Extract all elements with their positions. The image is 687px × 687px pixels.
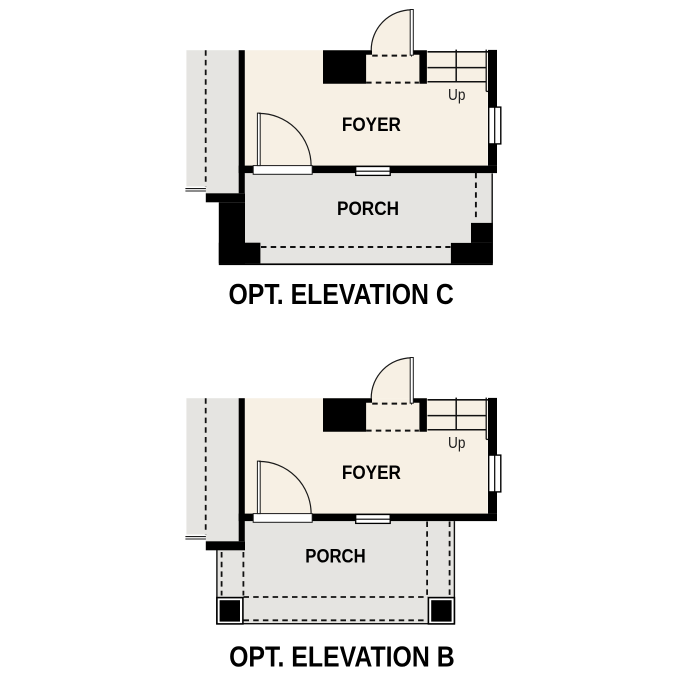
svg-text:OPT. ELEVATION C: OPT. ELEVATION C	[229, 279, 454, 311]
svg-text:PORCH: PORCH	[337, 198, 399, 220]
svg-text:OPT. ELEVATION B: OPT. ELEVATION B	[229, 641, 455, 673]
svg-text:PORCH: PORCH	[305, 546, 365, 568]
